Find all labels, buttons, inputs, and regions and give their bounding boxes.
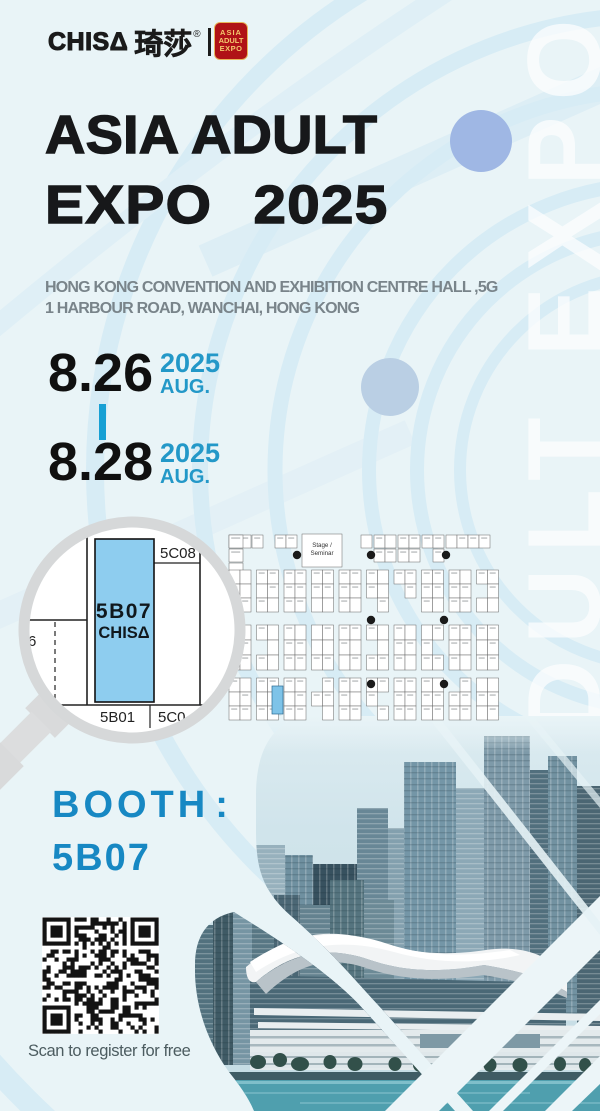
svg-text:CHISΔ: CHISΔ [98,624,149,642]
svg-text:5C08: 5C08 [160,545,196,562]
svg-text:5B01: 5B01 [100,709,135,726]
svg-text:5B07: 5B07 [96,600,152,623]
